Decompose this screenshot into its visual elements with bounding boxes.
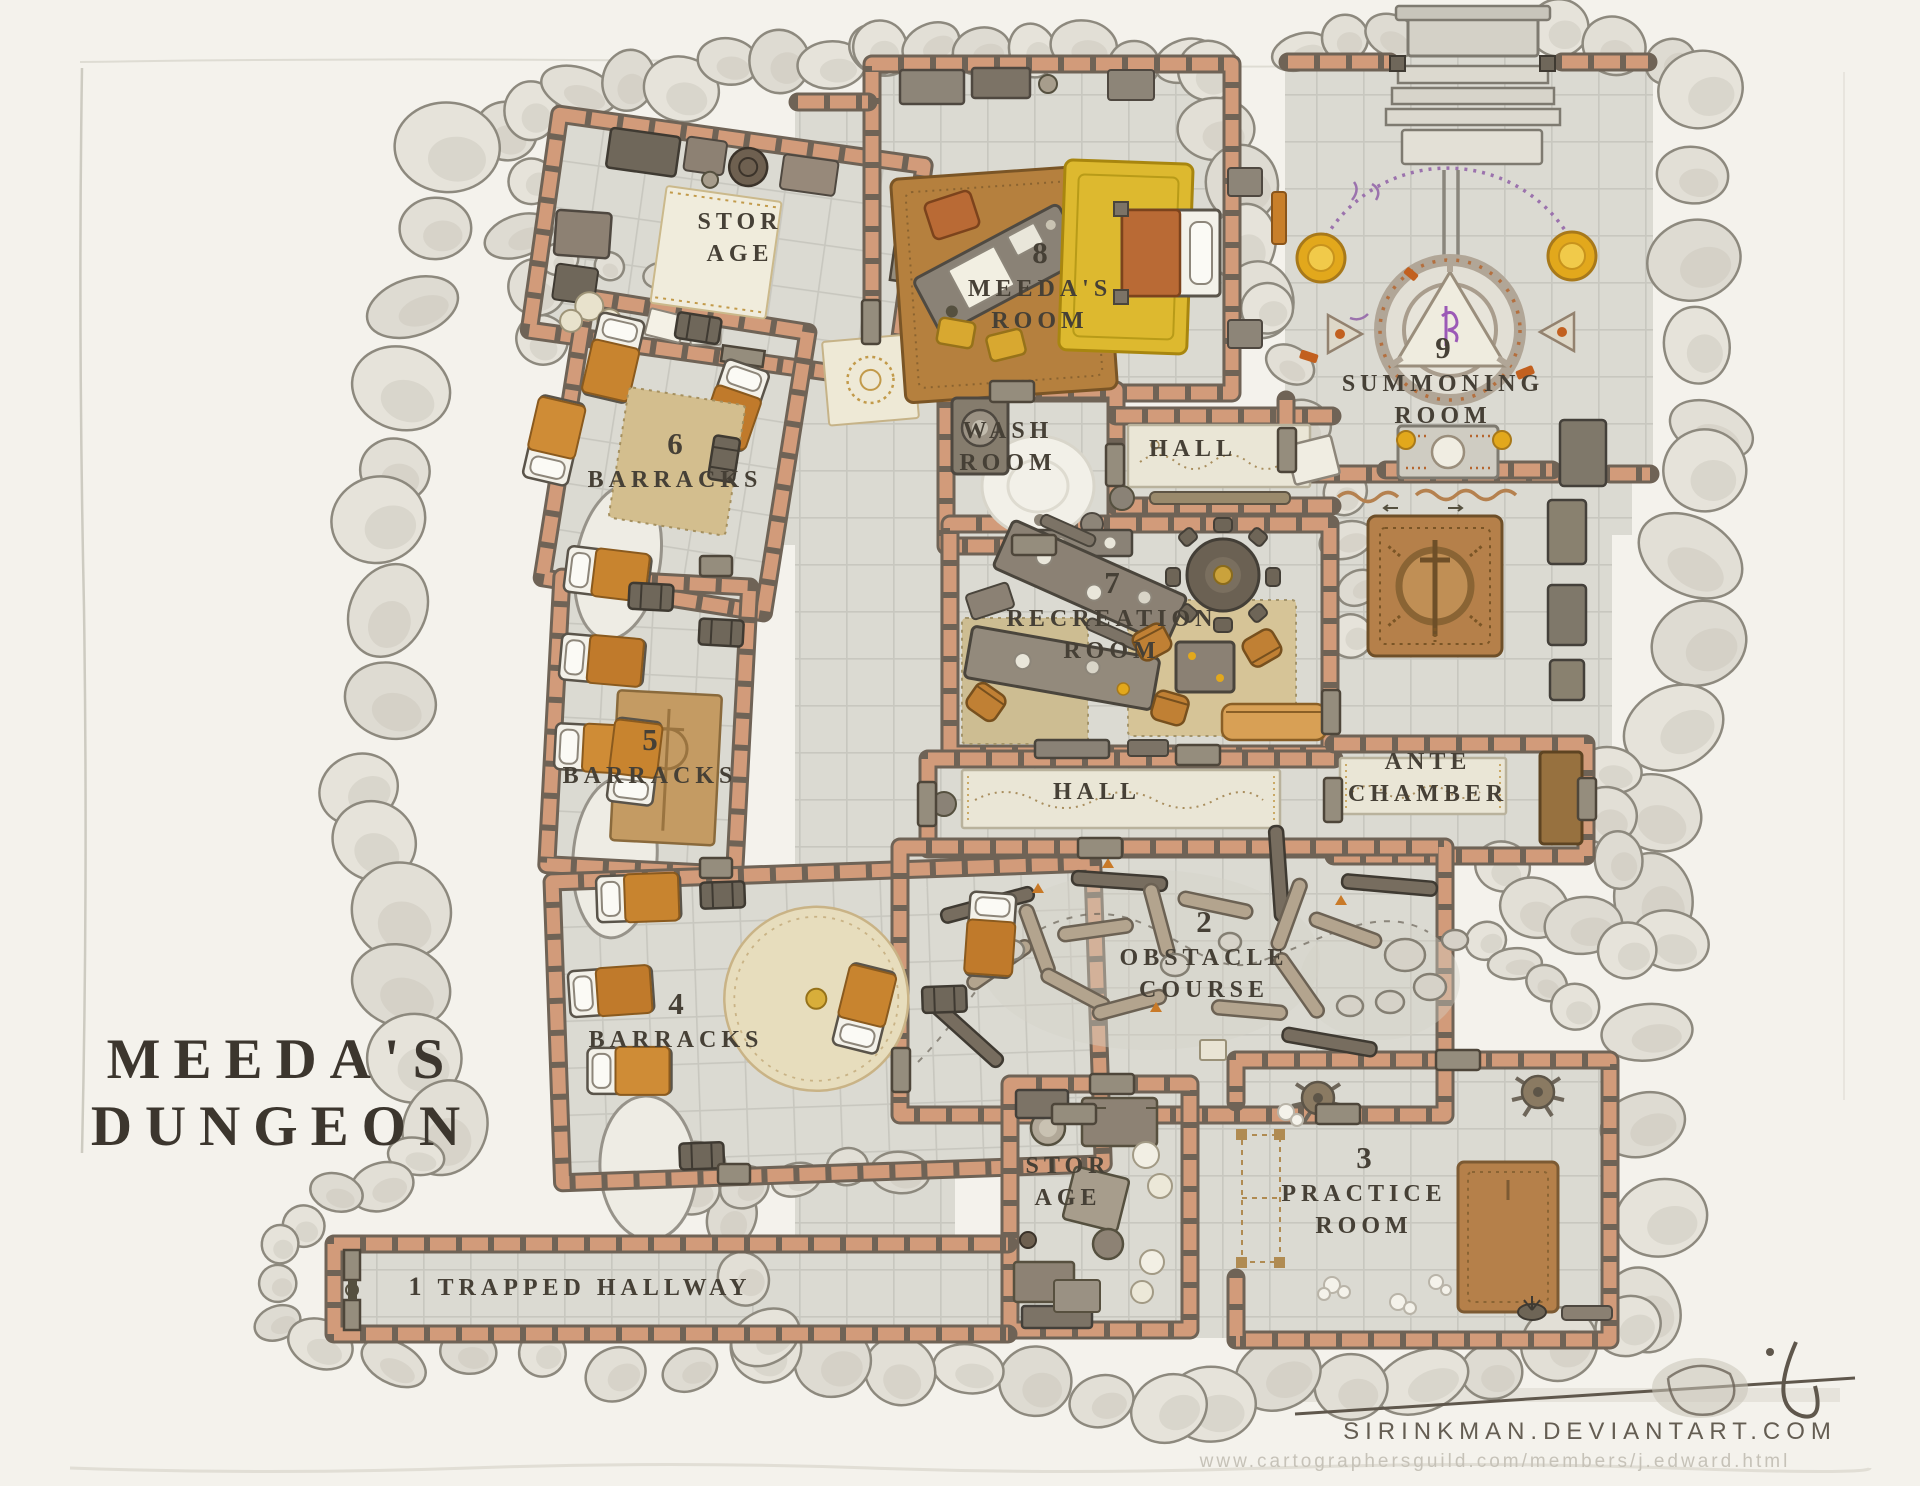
boulder bbox=[1638, 209, 1750, 311]
dungeon-map: MEEDA'S DUNGEON STOR AGE 6 BARRACKS 5 BA… bbox=[0, 0, 1920, 1486]
bed bbox=[596, 872, 682, 923]
room-label-meedas-room: 8 MEEDA'S ROOM bbox=[968, 237, 1112, 337]
room-name: BARRACKS bbox=[589, 1024, 764, 1056]
room-number: 5 bbox=[563, 724, 738, 755]
room-number: 6 bbox=[588, 428, 763, 459]
room-label-trapped-hallway: 1 TRAPPED HALLWAY bbox=[409, 1272, 752, 1304]
boulder bbox=[576, 1337, 654, 1411]
room-label-storage-top: STOR AGE bbox=[698, 206, 783, 270]
dungeon-map-illustration bbox=[0, 0, 1920, 1486]
boulder bbox=[1640, 588, 1759, 699]
room-label-recreation-room: 7 RECREATION ROOM bbox=[1007, 567, 1218, 667]
room-number: 4 bbox=[589, 988, 764, 1019]
room-name: HALL bbox=[1053, 776, 1141, 808]
room-name: HALL bbox=[1149, 433, 1237, 465]
room-number: 8 bbox=[968, 237, 1112, 268]
room-label-storage-bottom: STOR AGE bbox=[1026, 1150, 1111, 1214]
room-name: ANTE CHAMBER bbox=[1348, 746, 1508, 810]
room-number: 9 bbox=[1342, 332, 1544, 363]
room-number: 3 bbox=[1281, 1142, 1446, 1173]
map-title: MEEDA'S DUNGEON bbox=[52, 1026, 512, 1161]
boulder bbox=[1662, 428, 1747, 512]
room-label-ante-chamber: ANTE CHAMBER bbox=[1348, 746, 1508, 810]
room-name: MEEDA'S ROOM bbox=[968, 273, 1112, 337]
practice-mat bbox=[1458, 1162, 1558, 1312]
artist-site-credit: SIRINKMAN.DEVIANTART.COM bbox=[1335, 1418, 1845, 1446]
room-name: BARRACKS bbox=[588, 464, 763, 496]
boulder bbox=[359, 265, 466, 349]
boulder bbox=[1654, 143, 1731, 207]
brazier bbox=[1297, 234, 1345, 282]
bed bbox=[964, 891, 1018, 978]
boulder bbox=[1064, 1368, 1139, 1434]
room-name: STOR AGE bbox=[1026, 1150, 1111, 1214]
chest bbox=[628, 583, 673, 611]
room-label-barracks-6: 6 BARRACKS bbox=[588, 428, 763, 496]
boulder bbox=[257, 1263, 299, 1305]
room-label-hall-lower: HALL bbox=[1053, 776, 1141, 808]
room-label-practice-room: 3 PRACTICE ROOM bbox=[1281, 1142, 1446, 1242]
boulder bbox=[399, 197, 472, 260]
boulder bbox=[1461, 1345, 1523, 1400]
bed bbox=[558, 632, 646, 687]
room-label-wash-room: WASH ROOM bbox=[959, 415, 1056, 479]
chest bbox=[674, 312, 722, 345]
cartographers-guild-url: www.cartographersguild.com/members/j.edw… bbox=[1145, 1451, 1845, 1473]
boulder bbox=[333, 550, 443, 670]
boulder bbox=[341, 334, 460, 442]
chest bbox=[922, 986, 967, 1014]
meeda-bed bbox=[1114, 202, 1220, 304]
rec-couch bbox=[1222, 704, 1326, 740]
room-label-barracks-5: 5 BARRACKS bbox=[563, 724, 738, 792]
room-label-hall-upper: HALL bbox=[1149, 433, 1237, 465]
chest bbox=[699, 618, 744, 646]
boulder bbox=[998, 1345, 1073, 1417]
room-name: TRAPPED HALLWAY bbox=[438, 1272, 752, 1304]
room-label-summoning-room: 9 SUMMONING ROOM bbox=[1342, 332, 1544, 432]
room-number: 2 bbox=[1120, 906, 1289, 937]
boulder bbox=[930, 1339, 1007, 1398]
room-name: OBSTACLE COURSE bbox=[1120, 942, 1289, 1006]
boulder bbox=[656, 1341, 723, 1400]
room-name: BARRACKS bbox=[563, 760, 738, 792]
boulder bbox=[336, 652, 445, 750]
room-name: STOR AGE bbox=[698, 206, 783, 270]
boulder bbox=[1609, 1171, 1714, 1265]
room-label-obstacle-course: 2 OBSTACLE COURSE bbox=[1120, 906, 1289, 1006]
boulder bbox=[1658, 302, 1736, 389]
room-name: PRACTICE ROOM bbox=[1281, 1178, 1446, 1242]
brazier bbox=[1548, 232, 1596, 280]
room-label-barracks-4: 4 BARRACKS bbox=[589, 988, 764, 1056]
boulder bbox=[1624, 496, 1757, 616]
trapped-hallway-door bbox=[344, 1250, 360, 1330]
chest bbox=[700, 881, 745, 909]
room-name: SUMMONING ROOM bbox=[1342, 368, 1544, 432]
training-mat bbox=[1368, 516, 1502, 656]
room-name: RECREATION ROOM bbox=[1007, 603, 1218, 667]
room-number: 1 bbox=[409, 1274, 422, 1300]
room-name: WASH ROOM bbox=[959, 415, 1056, 479]
room-number: 7 bbox=[1007, 567, 1218, 598]
